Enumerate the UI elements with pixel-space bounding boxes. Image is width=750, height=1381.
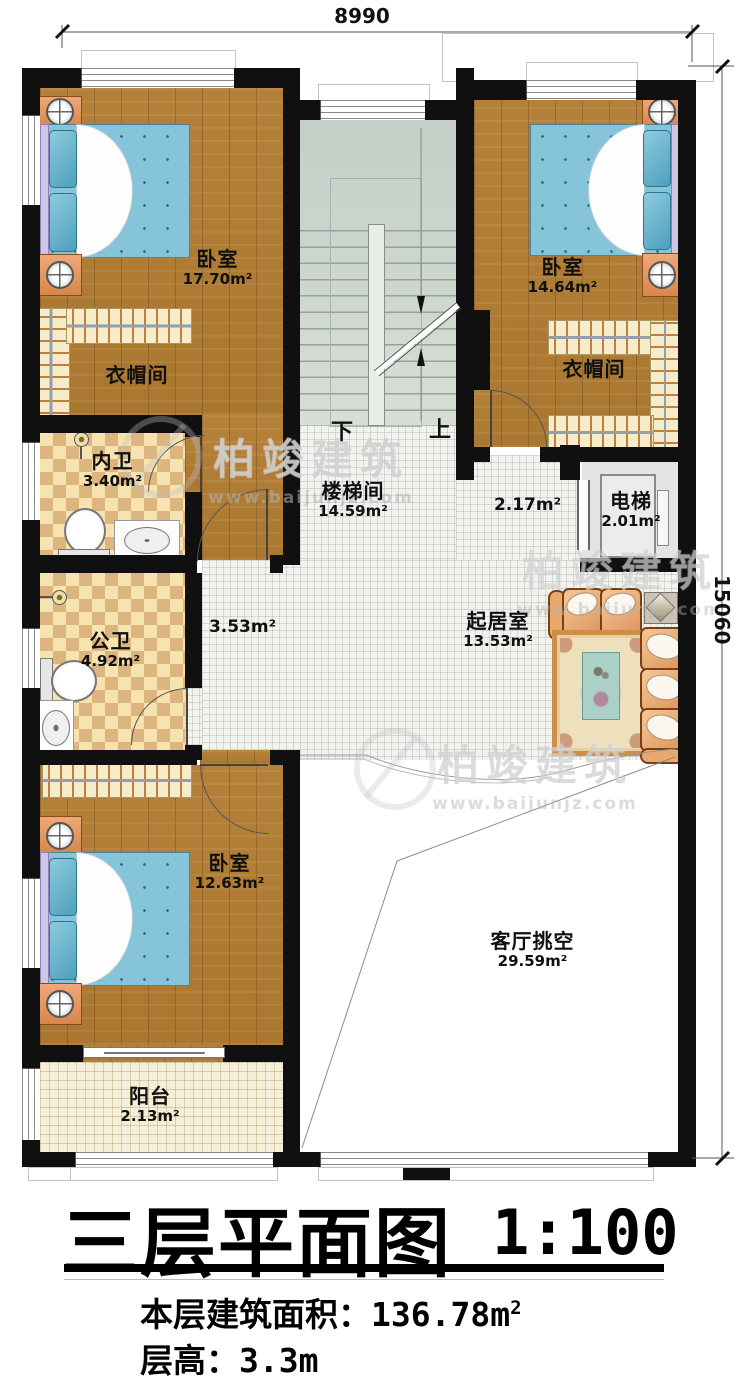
area-label-corridor: 2.17m² — [480, 496, 575, 516]
room-label-void: 客厅挑空 29.59m² — [455, 930, 610, 970]
room-label-balcony: 阳台 2.13m² — [95, 1085, 205, 1125]
room-label-closet-r: 衣帽间 — [549, 358, 639, 381]
room-label-bedroom-tl: 卧室 17.70m² — [150, 248, 285, 288]
room-label-living: 起居室 13.53m² — [428, 610, 568, 650]
stair-down-label: 下 — [322, 420, 362, 445]
room-label-bedroom-tr: 卧室 14.64m² — [495, 256, 630, 296]
room-label-bedroom-b: 卧室 12.63m² — [162, 852, 297, 892]
room-label-stairwell: 楼梯间 14.59m² — [278, 480, 428, 520]
title-underline — [64, 1264, 664, 1272]
floor-height-line: 层高：3.3m — [140, 1334, 318, 1381]
room-label-bath-inner: 内卫 3.40m² — [60, 450, 165, 490]
floor-area-line: 本层建筑面积：136.78m2 — [140, 1288, 522, 1336]
room-label-closet-l: 衣帽间 — [92, 364, 182, 387]
title-underline-thin — [64, 1279, 664, 1280]
drawing-scale: 1:100 — [492, 1196, 679, 1269]
dimension-top: 8990 — [330, 4, 394, 28]
room-label-bath-public: 公卫 4.92m² — [58, 630, 163, 670]
annotation-lines — [0, 0, 750, 1381]
room-label-elevator: 电梯 2.01m² — [586, 490, 676, 530]
drawing-title: 三层平面图 — [62, 1182, 452, 1292]
area-label-hall: 3.53m² — [195, 618, 290, 638]
floor-plan-canvas: 柏竣建筑 www.baijunjz.com 柏竣建筑 www.baijunjz.… — [0, 0, 750, 1381]
stair-up-label: 上 — [420, 418, 460, 443]
dimension-right: 15060 — [710, 575, 734, 639]
